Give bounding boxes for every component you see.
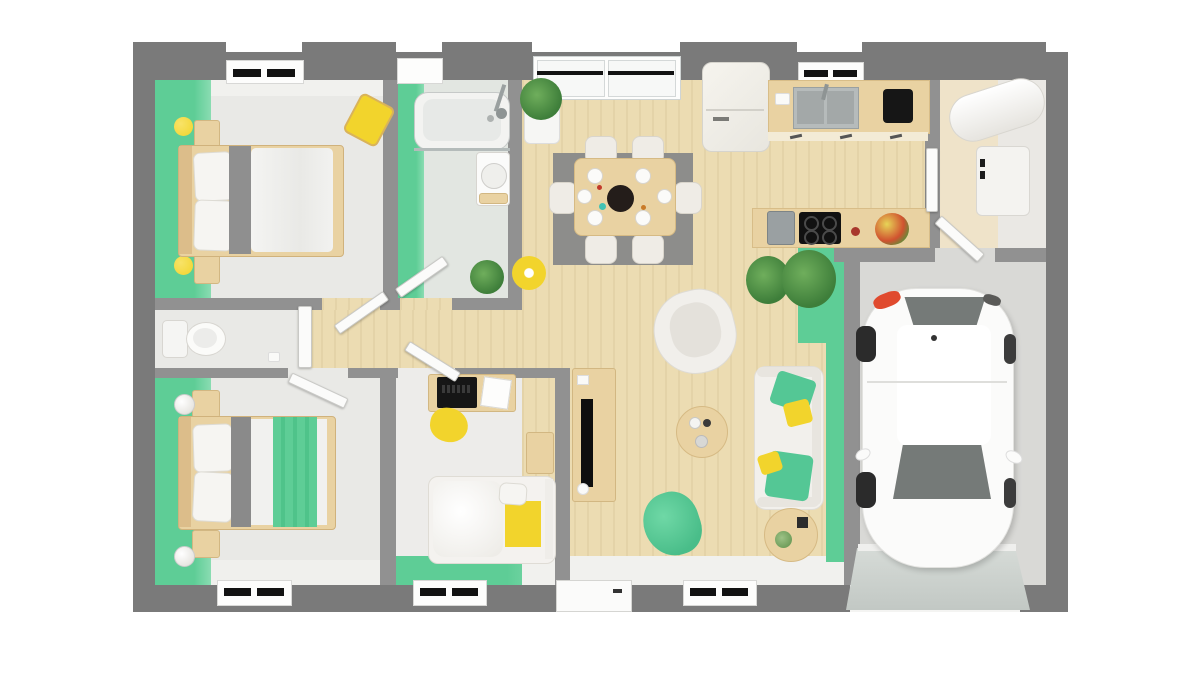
- bathtub: [414, 92, 510, 150]
- kids-duvet: [433, 481, 503, 557]
- yellow-cushion: [782, 398, 813, 428]
- wall-bedroom2-kids: [380, 368, 396, 585]
- cup: [703, 419, 711, 427]
- bed-headboard: [179, 146, 192, 254]
- toilet-seat: [193, 328, 217, 348]
- bed-duvet: [251, 419, 275, 525]
- place-setting: [577, 189, 592, 204]
- washer-controls: [980, 159, 985, 167]
- burner: [822, 230, 837, 245]
- car-wheel: [856, 326, 876, 362]
- window-pane: [690, 588, 716, 596]
- bed-duvet-edge: [317, 419, 327, 525]
- entry-door: [556, 580, 632, 612]
- car-wheel: [856, 472, 876, 508]
- papers: [480, 376, 512, 410]
- deco-item: [577, 483, 589, 495]
- window-pane: [233, 69, 261, 77]
- laptop-keys: [442, 385, 472, 393]
- sink-bowl: [827, 91, 854, 124]
- shower-head: [496, 108, 507, 119]
- tv-sideboard: [572, 368, 616, 502]
- window-pane: [722, 588, 748, 596]
- fruit-bowl: [875, 213, 909, 245]
- car-roof: [897, 325, 991, 445]
- place-setting: [587, 168, 603, 184]
- washbasin-shelf: [479, 193, 508, 204]
- window-pane: [224, 588, 251, 596]
- bed-runner-gray: [231, 417, 251, 527]
- red-fruit: [597, 185, 602, 190]
- window-pane: [267, 69, 295, 77]
- wc-door: [298, 306, 312, 368]
- outer-wall-right: [1046, 52, 1068, 612]
- nightstand: [192, 530, 220, 558]
- teal-cup: [599, 203, 606, 210]
- sink-bowl: [797, 91, 824, 124]
- coffee-machine: [883, 89, 913, 123]
- kids-yellow-blanket: [505, 501, 541, 547]
- car-windshield: [893, 445, 991, 499]
- entry-door-handle: [613, 589, 622, 593]
- bathroom-plant: [470, 260, 504, 294]
- bed-pillow: [192, 471, 235, 523]
- orange-fruit: [641, 205, 646, 210]
- tall-plant: [520, 78, 562, 120]
- cooktop: [799, 212, 841, 244]
- toilet-tank: [162, 320, 188, 358]
- burner: [804, 216, 819, 231]
- kitchen-utility-door: [926, 148, 938, 212]
- kids-single-bed: [428, 476, 556, 564]
- glass-panel: [608, 60, 676, 97]
- floor-plan-render: [0, 0, 1200, 675]
- small-plant: [775, 531, 792, 548]
- car: [862, 288, 1014, 568]
- bed-green-blanket: [273, 417, 317, 527]
- drawer-handle: [840, 134, 852, 139]
- dining-chair: [549, 182, 577, 214]
- glass-door-header: [537, 71, 603, 75]
- window-pane: [452, 588, 478, 596]
- washbasin-bowl: [481, 163, 507, 189]
- glass-door-header: [608, 71, 674, 75]
- ball-lamp-white: [174, 394, 195, 415]
- drawer-handle: [790, 134, 802, 139]
- place-setting: [657, 189, 672, 204]
- bed-headboard: [179, 417, 191, 527]
- kids-nightstand: [526, 432, 554, 474]
- place-setting: [635, 210, 651, 226]
- kitchen-sink: [793, 87, 859, 129]
- washing-machine: [976, 146, 1030, 216]
- living-plant: [782, 250, 836, 308]
- deco-item: [577, 375, 589, 385]
- dining-chair: [632, 234, 664, 264]
- sofa: [754, 366, 824, 510]
- window-pane: [420, 588, 446, 596]
- fridge: [702, 62, 770, 152]
- ball-lamp-yellow: [174, 256, 193, 275]
- wall-kids-living: [555, 368, 570, 585]
- red-jar: [851, 227, 860, 236]
- car-rear-window: [901, 297, 989, 325]
- car-antenna: [931, 335, 937, 341]
- bathtub-drain: [487, 115, 494, 122]
- cup: [695, 435, 708, 448]
- kids-pillow: [498, 482, 527, 506]
- ball-lamp-yellow: [174, 117, 193, 136]
- yellow-pendant-lamp: [512, 256, 546, 290]
- wall-living-garage: [844, 262, 860, 585]
- burner: [804, 230, 819, 245]
- toilet-bowl: [186, 322, 226, 356]
- drawer-handle: [890, 134, 902, 139]
- car-wheel: [1004, 478, 1016, 508]
- kids-headboard: [545, 479, 553, 559]
- kids-desk: [428, 374, 516, 412]
- car-door-seam: [867, 381, 1007, 383]
- bedroom1-window: [226, 60, 304, 84]
- cup: [689, 417, 701, 429]
- toilet-paper: [268, 352, 280, 362]
- window-pane: [804, 70, 828, 77]
- place-setting: [587, 210, 603, 226]
- tub-glass-screen: [414, 148, 510, 151]
- tv: [581, 399, 593, 487]
- living-window: [683, 580, 757, 606]
- coffee-maker: [767, 211, 795, 245]
- double-bed-green: [178, 416, 336, 530]
- bed-pillow: [193, 199, 234, 251]
- place-setting: [635, 168, 651, 184]
- deco-box: [797, 517, 808, 528]
- double-bed-master: [178, 145, 344, 257]
- serving-tray: [607, 185, 634, 212]
- ball-lamp-white: [174, 546, 195, 567]
- bed-duvet: [251, 148, 333, 252]
- bed-pillow: [192, 423, 234, 472]
- kitchen-counter: [768, 80, 930, 134]
- washbasin-cabinet: [476, 152, 510, 206]
- bathroom-window: [397, 58, 443, 84]
- fridge-handle: [713, 117, 729, 121]
- kitchen-island: [752, 208, 930, 248]
- dining-table: [574, 158, 676, 236]
- window-pane: [833, 70, 857, 77]
- side-table: [764, 508, 818, 562]
- burner: [822, 216, 837, 231]
- coffee-table: [676, 406, 728, 458]
- dining-chair: [674, 182, 702, 214]
- dish: [775, 93, 790, 105]
- bathroom-door-gap: [400, 298, 452, 310]
- outer-wall-left: [133, 52, 155, 612]
- armchair-seat: [665, 298, 727, 362]
- fridge-door-split: [706, 109, 764, 111]
- kids-window: [413, 580, 487, 606]
- dining-chair: [585, 234, 617, 264]
- washer-controls: [980, 171, 985, 179]
- window-pane: [257, 588, 284, 596]
- nightstand: [192, 390, 220, 418]
- bed-runner-gray: [229, 146, 251, 254]
- kitchen-counter-front: [768, 132, 928, 141]
- bedroom2-window: [217, 580, 292, 606]
- car-wheel: [1004, 334, 1016, 364]
- laptop: [437, 377, 477, 408]
